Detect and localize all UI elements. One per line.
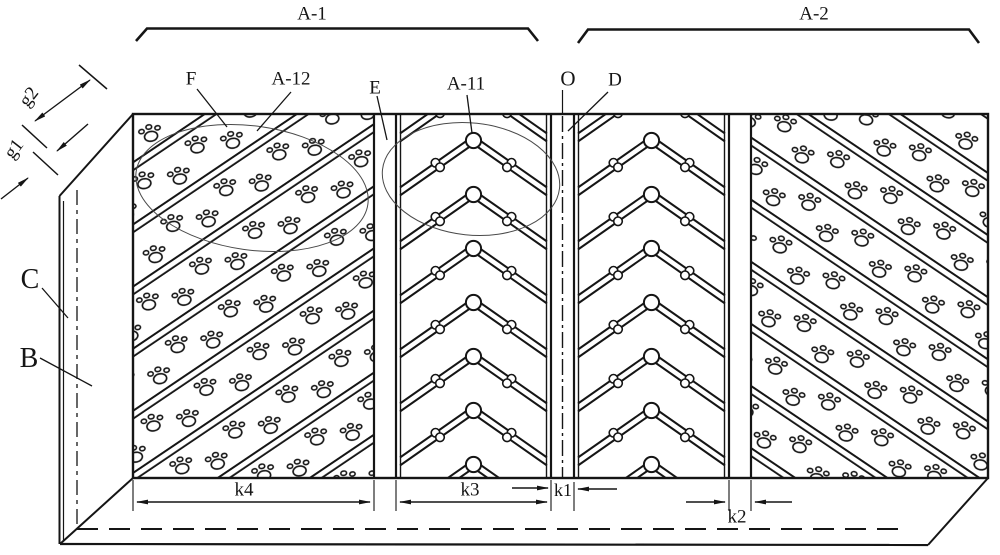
extension-lines — [133, 480, 751, 511]
patent-figure: A-1 A-2 F A-12 E A-11 O D C B g2 g1 k4 k… — [0, 0, 1000, 555]
paw-band-column-left — [133, 114, 374, 478]
paw-band-column-right — [751, 114, 988, 478]
bracket-a1 — [136, 29, 538, 42]
chevron-column-a11 — [400, 79, 547, 520]
leader-e — [377, 96, 387, 140]
chevron-column-right — [578, 79, 725, 520]
bracket-a2 — [578, 30, 979, 44]
g-dimensions — [1, 65, 107, 199]
k-dimensions — [133, 480, 792, 511]
tread-pattern-drawing — [0, 0, 1000, 555]
leader-b — [40, 358, 92, 386]
